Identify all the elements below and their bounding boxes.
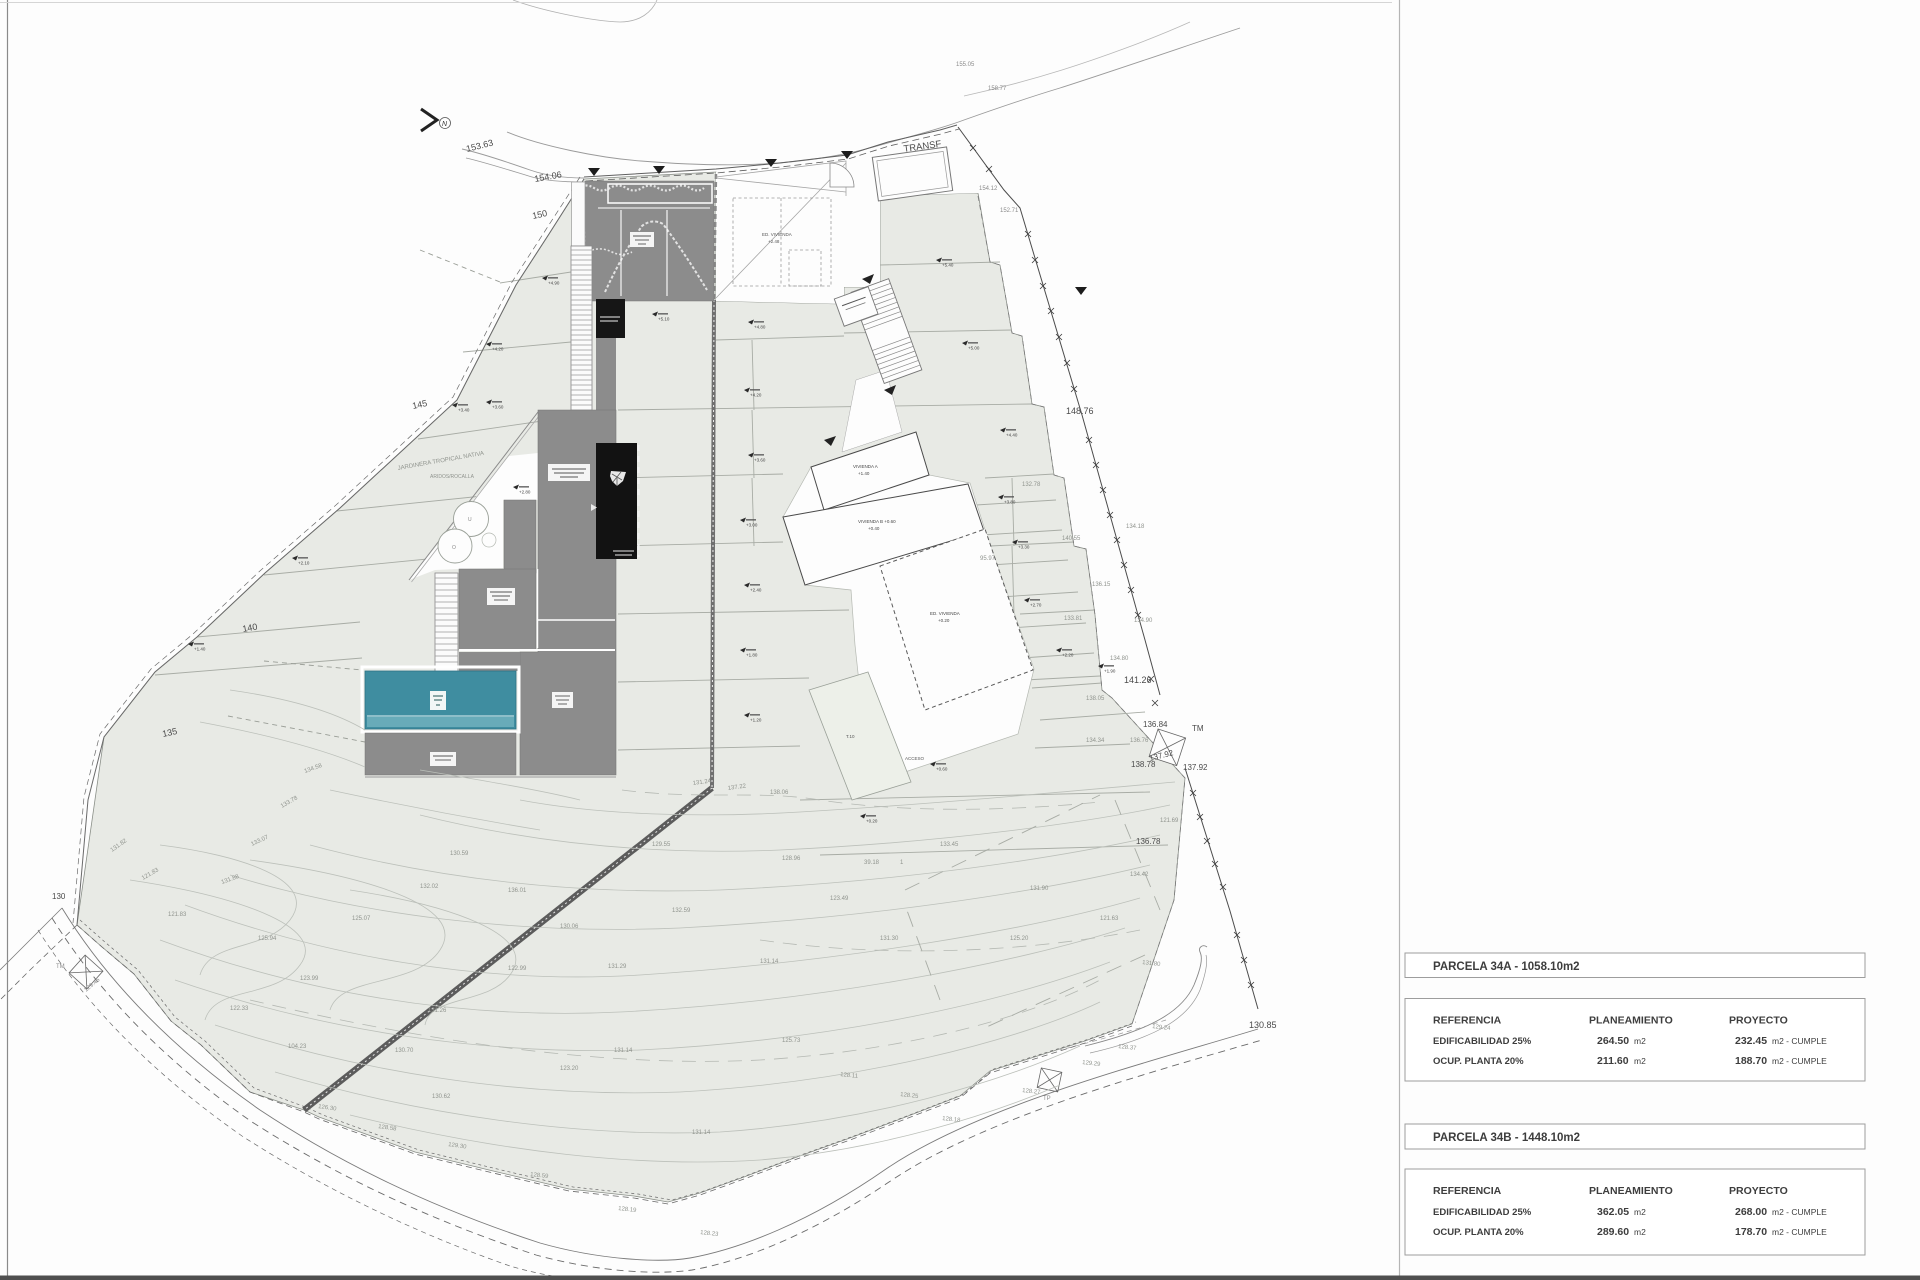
svg-text:+3.60: +3.60 (754, 458, 766, 463)
svg-text:132.59: 132.59 (672, 908, 691, 914)
svg-text:136.78: 136.78 (1136, 837, 1161, 846)
svg-text:132.78: 132.78 (1022, 482, 1041, 488)
svg-text:+0.20: +0.20 (938, 618, 950, 623)
svg-text:130.59: 130.59 (450, 851, 469, 857)
svg-text:131.14: 131.14 (614, 1048, 633, 1054)
svg-text:130.62: 130.62 (432, 1094, 451, 1100)
svg-text:PLANEAMIENTO: PLANEAMIENTO (1589, 1185, 1673, 1197)
svg-text:U: U (468, 517, 472, 523)
svg-text:211.60: 211.60 (1597, 1055, 1629, 1067)
svg-text:134.80: 134.80 (1110, 656, 1129, 662)
svg-text:+1.80: +1.80 (746, 653, 758, 658)
svg-text:+4.90: +4.90 (548, 281, 560, 286)
svg-text:m2 - CUMPLE: m2 - CUMPLE (1772, 1207, 1827, 1217)
svg-text:136.76: 136.76 (1130, 738, 1149, 744)
svg-text:131.29: 131.29 (608, 964, 627, 970)
svg-text:REFERENCIA: REFERENCIA (1433, 1015, 1502, 1027)
svg-text:m2: m2 (1634, 1227, 1646, 1237)
svg-text:131.14: 131.14 (760, 959, 779, 965)
svg-text:125.07: 125.07 (352, 916, 371, 922)
svg-text:122.33: 122.33 (230, 1006, 249, 1012)
svg-text:+3.60: +3.60 (492, 405, 504, 410)
svg-text:TP: TP (1043, 1096, 1051, 1102)
svg-text:m2 - CUMPLE: m2 - CUMPLE (1772, 1036, 1827, 1046)
svg-text:133.45: 133.45 (940, 842, 959, 848)
svg-text:148.76: 148.76 (1066, 406, 1094, 416)
svg-text:+2.70: +2.70 (1030, 603, 1042, 608)
svg-text:VIVIENDA A: VIVIENDA A (853, 464, 878, 469)
svg-text:232.45: 232.45 (1735, 1035, 1767, 1047)
svg-text:+0.60: +0.60 (936, 767, 948, 772)
svg-text:+3.30: +3.30 (1018, 545, 1030, 550)
svg-text:TM: TM (56, 964, 65, 970)
svg-text:O: O (452, 545, 456, 551)
svg-text:131.26: 131.26 (428, 1008, 447, 1014)
svg-text:VIVIENDA B +0.60: VIVIENDA B +0.60 (858, 519, 896, 524)
svg-text:158.77: 158.77 (988, 86, 1007, 92)
svg-text:TM: TM (1192, 724, 1204, 733)
svg-text:+2.80: +2.80 (519, 490, 531, 495)
svg-text:+5.10: +5.10 (658, 317, 670, 322)
svg-text:123.20: 123.20 (560, 1066, 579, 1072)
svg-text:128.96: 128.96 (782, 856, 801, 862)
svg-text:137.92: 137.92 (1183, 763, 1208, 772)
svg-text:155.05: 155.05 (956, 62, 975, 68)
svg-text:136.84: 136.84 (1143, 720, 1168, 729)
svg-text:+0.20: +0.20 (866, 819, 878, 824)
svg-text:ED. VIVIENDA: ED. VIVIENDA (930, 611, 960, 616)
svg-text:EDIFICABILIDAD 25%: EDIFICABILIDAD 25% (1433, 1207, 1532, 1218)
svg-text:362.05: 362.05 (1597, 1206, 1629, 1218)
svg-text:138.05: 138.05 (1086, 696, 1105, 702)
svg-text:122.99: 122.99 (508, 966, 527, 972)
svg-text:131.14: 131.14 (692, 1130, 711, 1136)
svg-text:289.60: 289.60 (1597, 1226, 1629, 1238)
svg-text:130.06: 130.06 (560, 924, 579, 930)
svg-text:T.10: T.10 (846, 734, 855, 739)
svg-text:PROYECTO: PROYECTO (1729, 1185, 1788, 1197)
svg-text:+4.20: +4.20 (492, 347, 504, 352)
svg-text:+2.20: +2.20 (1062, 653, 1074, 658)
svg-text:140.55: 140.55 (1062, 536, 1081, 542)
svg-text:134.18: 134.18 (1126, 524, 1145, 530)
svg-text:+1.40: +1.40 (194, 647, 206, 652)
svg-text:130.70: 130.70 (395, 1048, 414, 1054)
svg-text:95.97: 95.97 (980, 556, 996, 562)
svg-text:134.34: 134.34 (1086, 738, 1105, 744)
svg-text:PROYECTO: PROYECTO (1729, 1015, 1788, 1027)
svg-text:PARCELA 34A - 1058.10m2: PARCELA 34A - 1058.10m2 (1433, 961, 1580, 973)
svg-text:+5.40: +5.40 (942, 263, 954, 268)
svg-text:154.12: 154.12 (979, 186, 998, 192)
svg-text:130: 130 (52, 892, 66, 901)
svg-text:OCUP. PLANTA 20%: OCUP. PLANTA 20% (1433, 1227, 1524, 1238)
svg-text:188.70: 188.70 (1735, 1055, 1767, 1067)
svg-text:+3.40: +3.40 (458, 408, 470, 413)
svg-text:m2: m2 (1634, 1207, 1646, 1217)
svg-text:132.02: 132.02 (420, 884, 439, 890)
svg-text:125.20: 125.20 (1010, 936, 1029, 942)
svg-text:+0.40: +0.40 (868, 526, 880, 531)
svg-text:m2: m2 (1634, 1056, 1646, 1066)
svg-text:+3.00: +3.00 (746, 523, 758, 528)
svg-text:+1.90: +1.90 (1104, 669, 1116, 674)
svg-text:m2 - CUMPLE: m2 - CUMPLE (1772, 1227, 1827, 1237)
svg-text:+2.40: +2.40 (750, 588, 762, 593)
svg-text:131.90: 131.90 (1030, 886, 1049, 892)
svg-text:ED. VIVIENDA: ED. VIVIENDA (762, 232, 792, 237)
svg-text:130.85: 130.85 (1249, 1020, 1277, 1030)
svg-text:+4.80: +4.80 (754, 325, 766, 330)
svg-text:PARCELA 34B - 1448.10m2: PARCELA 34B - 1448.10m2 (1433, 1132, 1580, 1144)
svg-text:123.99: 123.99 (300, 976, 319, 982)
svg-text:+4.20: +4.20 (750, 393, 762, 398)
svg-text:+4.40: +4.40 (1006, 433, 1018, 438)
svg-text:+2.48: +2.48 (768, 239, 780, 244)
svg-text:m2 - CUMPLE: m2 - CUMPLE (1772, 1056, 1827, 1066)
svg-text:+3.80: +3.80 (1004, 500, 1016, 505)
svg-text:125.94: 125.94 (258, 936, 277, 942)
svg-text:133.81: 133.81 (1064, 616, 1083, 622)
svg-text:+1.40: +1.40 (858, 471, 870, 476)
svg-text:EDIFICABILIDAD 25%: EDIFICABILIDAD 25% (1433, 1036, 1532, 1047)
svg-text:m2: m2 (1634, 1036, 1646, 1046)
svg-text:121.83: 121.83 (168, 912, 187, 918)
svg-text:134.90: 134.90 (1134, 618, 1153, 624)
svg-text:129.55: 129.55 (652, 842, 671, 848)
svg-text:REFERENCIA: REFERENCIA (1433, 1185, 1502, 1197)
svg-text:104.23: 104.23 (288, 1044, 307, 1050)
svg-text:PLANEAMIENTO: PLANEAMIENTO (1589, 1015, 1673, 1027)
svg-text:ARIDOS/ROCALLA: ARIDOS/ROCALLA (430, 474, 475, 480)
svg-text:264.50: 264.50 (1597, 1035, 1629, 1047)
svg-text:141.26: 141.26 (1124, 675, 1152, 685)
svg-text:134.42: 134.42 (1130, 872, 1149, 878)
svg-text:268.00: 268.00 (1735, 1206, 1767, 1218)
svg-text:121.63: 121.63 (1100, 916, 1119, 922)
svg-text:136.15: 136.15 (1092, 582, 1111, 588)
svg-text:ACCESO: ACCESO (905, 756, 925, 761)
svg-text:178.70: 178.70 (1735, 1226, 1767, 1238)
svg-text:123.49: 123.49 (830, 896, 849, 902)
svg-text:+5.00: +5.00 (968, 346, 980, 351)
svg-text:125.73: 125.73 (782, 1038, 801, 1044)
svg-text:+2.10: +2.10 (298, 561, 310, 566)
svg-text:121.69: 121.69 (1160, 818, 1179, 824)
svg-text:OCUP. PLANTA 20%: OCUP. PLANTA 20% (1433, 1056, 1524, 1067)
svg-text:136.01: 136.01 (508, 888, 527, 894)
svg-text:131.30: 131.30 (880, 936, 899, 942)
svg-text:152.71: 152.71 (1000, 208, 1019, 214)
svg-text:138.06: 138.06 (770, 790, 789, 796)
svg-text:+1.20: +1.20 (750, 718, 762, 723)
